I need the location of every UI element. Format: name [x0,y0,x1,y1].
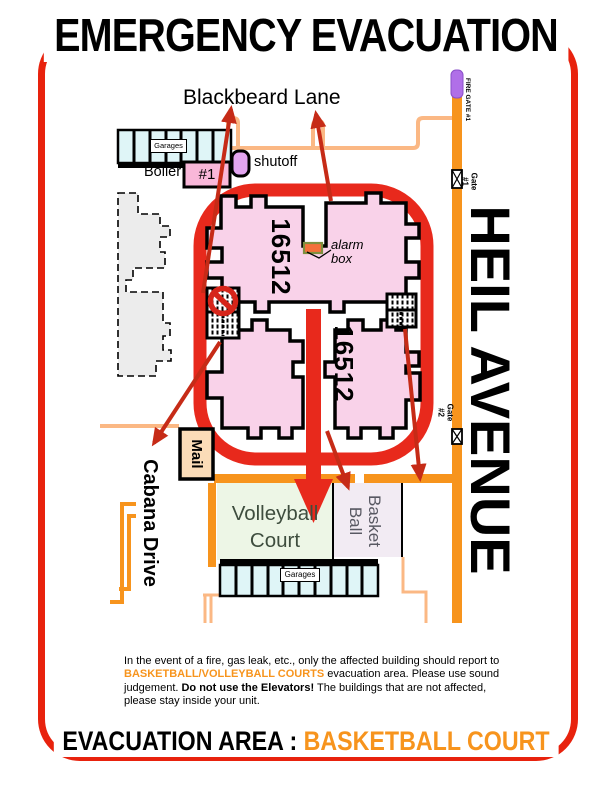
boiler-label: Boiler [144,164,181,180]
building-number-lower: 16512 [330,320,358,408]
notice-highlight: BASKETBALL/VOLLEYBALL COURTS [124,668,324,680]
southeast-lane-step [403,557,426,623]
page-title: EMERGENCY EVACUATION [44,8,568,62]
alarm-box-label: alarm box [331,238,364,265]
street-name-cabana-drive: Cabana Drive [137,445,163,601]
alarm-box-icon [304,243,322,253]
evacuation-flyer-page: EMERGENCY EVACUATION Blackbeard Lane HEI… [0,0,612,792]
volleyball-court-label: Volleyball Court [214,500,336,554]
evacuation-area-banner: EVACUATION AREA : BASKETBALL COURT [54,726,558,757]
gate2-label: Gate #2 [437,398,454,428]
neighbor-building-outline [118,193,171,376]
fire-gate-label: FIRE GATE #1 [463,72,472,127]
shutoff-label: shutoff [254,154,297,170]
basketball-court-label: Basket Ball [344,479,384,563]
garages-bottom-label: Garages [280,568,320,582]
street-name-heil-avenue: HEIL AVENUE [468,190,512,590]
south-lane-lines [203,595,219,623]
evacuation-notice: In the event of a fire, gas leak, etc., … [124,655,502,709]
garages-top-label: Garages [150,139,187,153]
gate1-label: Gate #1 [461,167,478,197]
banner-area-name: BASKETBALL COURT [304,726,550,756]
court-road-west-segment [214,474,355,483]
fire-gate-icon [451,70,463,98]
notice-text: In the event of a fire, gas leak, etc., … [124,655,499,667]
banner-label: EVACUATION AREA : [62,726,303,756]
shutoff-valve-icon [232,151,249,176]
carport-right [387,294,416,327]
building-number-upper: 16512 [267,213,295,301]
notice-emphasis: Do not use the Elevators! [181,682,314,694]
street-name-blackbeard-lane: Blackbeard Lane [183,86,341,110]
boiler-number-label: #1 [184,162,230,187]
blackbeard-lane-road [228,118,452,148]
mail-label: Mail [186,428,206,480]
